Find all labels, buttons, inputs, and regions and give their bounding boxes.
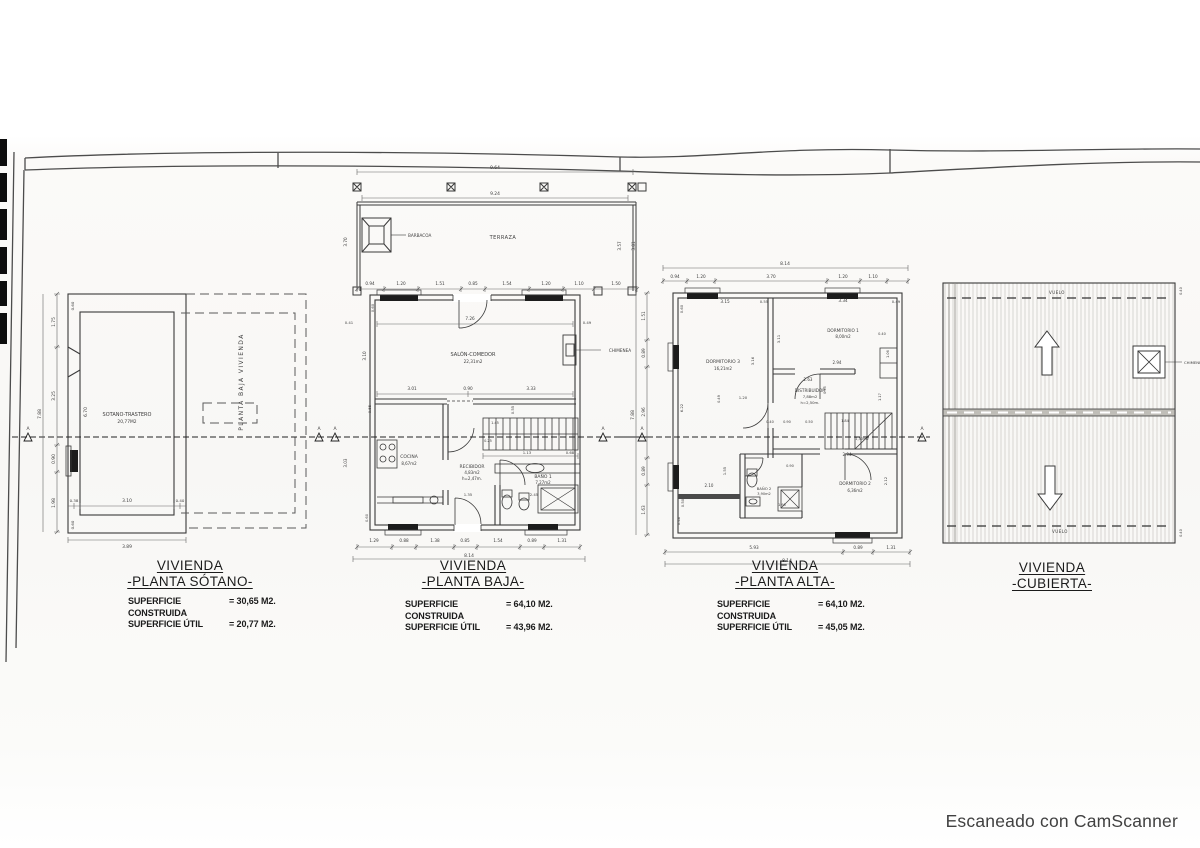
dim-label: 0.40 <box>766 420 774 424</box>
dim-label: 0.40 <box>1179 529 1183 537</box>
dim-label: 1.98 <box>51 498 57 508</box>
baja-stairs <box>483 418 580 473</box>
dim-label: 0.40 <box>878 332 886 336</box>
room-height-distribuidor: h=2,50m. <box>801 400 820 405</box>
dim-label: 0.46 <box>676 516 681 525</box>
dim-label: 1.84 <box>841 419 850 423</box>
room-area-bano2: 3,90m2 <box>757 492 770 496</box>
binding-strip <box>0 139 7 344</box>
plan-sotano: A A A SOTANO-TRASTERO 20,77M2 PLANTA BAJ… <box>10 282 350 567</box>
area-constructed-value: = 64,10 M2. <box>818 599 865 622</box>
dim-label: 1.35 <box>464 492 473 497</box>
bano1-fixtures <box>502 485 578 513</box>
dim-label: 0.60 <box>365 513 369 522</box>
dim-label: 6.70 <box>83 407 89 417</box>
alta-section-line: A A <box>620 426 930 441</box>
alta-stairs <box>825 413 892 449</box>
dim-label: 1.55 <box>722 466 727 475</box>
title-alta: VIVIENDA -PLANTA ALTA- <box>690 558 880 590</box>
dim-label: 1.51 <box>641 311 646 321</box>
dim-label: 1.95 <box>778 503 786 507</box>
room-label-cocina: COCINA <box>400 454 419 460</box>
room-area-salon: 22,31m2 <box>464 359 483 364</box>
dim-label: 0.49 <box>892 299 901 304</box>
title-vivienda: VIVIENDA <box>690 558 880 574</box>
dim-label: 3.10 <box>122 498 132 504</box>
plan-cubierta: VUELO VUELO CHIMENEA 0.40 0.40 <box>935 273 1200 573</box>
title-cubierta-sub: -CUBIERTA- <box>957 576 1147 592</box>
room-label-salon: SALÓN-COMEDOR <box>451 351 496 358</box>
room-label-dorm1: DORMITORIO 1 <box>827 328 859 333</box>
room-area-dorm3: 16,21m2 <box>714 366 732 371</box>
dim-label: 0.60 <box>370 303 375 312</box>
room-label-dorm2: DORMITORIO 2 <box>839 481 871 486</box>
baja-walls <box>370 295 580 530</box>
dim-label: 3.03 <box>343 458 348 467</box>
dim-label: 3.89 <box>122 544 132 550</box>
area-util-label: SUPERFICIE ÚTIL <box>128 619 229 631</box>
overlay-label: PLANTA BAJA VIVIENDA <box>238 333 245 430</box>
dim-label: 3.01 <box>407 386 417 391</box>
area-constructed-value: = 64,10 M2. <box>506 599 553 622</box>
dim-label: 0.85 <box>468 281 478 286</box>
dim-label: 2.63 <box>804 377 813 382</box>
room-label-distribuidor: DISTRIBUIDOR <box>795 388 826 393</box>
dim-label: 0.60 <box>70 520 75 529</box>
dim-label: 0.60 <box>70 301 75 310</box>
area-util-value: = 45,05 M2. <box>818 622 865 634</box>
room-label-dorm3: DORMITORIO 3 <box>706 359 740 365</box>
label-vuelo-bottom: VUELO <box>1052 529 1068 534</box>
dim-label: 0.25 <box>484 439 492 443</box>
dim-label: 0.55 <box>510 405 515 414</box>
dim-label: 3.70 <box>766 274 776 279</box>
dim-label: 9.64 <box>490 165 500 171</box>
dim-label: 1.10 <box>868 274 878 279</box>
dim-label: 0.90 <box>463 386 473 391</box>
barbacoa-grill <box>362 218 406 252</box>
dim-label: 0.60 <box>679 304 684 313</box>
dim-label: 0.55 <box>760 299 769 304</box>
dim-label: 3.81 <box>631 241 636 251</box>
plan-alta: A A 8.14 0.94 1.20 3.70 1.20 1.10 1.51 0… <box>618 253 930 575</box>
chimenea-fireplace <box>563 335 601 365</box>
section-label: A <box>317 426 321 432</box>
dim-label: 0.41 <box>345 320 354 325</box>
area-constructed-label: SUPERFICIE CONSTRUIDA <box>717 599 818 622</box>
bano2-fixtures <box>746 469 802 511</box>
room-label-terraza: TERRAZA <box>489 235 517 241</box>
room-area-bano1: 7,27m2 <box>535 480 551 485</box>
area-constructed-label: SUPERFICIE CONSTRUIDA <box>128 596 229 619</box>
room-area-dorm1: 8,00m2 <box>835 334 851 339</box>
dim-label: 0.90 <box>51 454 57 464</box>
area-util-value: = 43,96 M2. <box>506 622 553 634</box>
dim-label: 8.14 <box>780 261 790 267</box>
dim-label: 1.38 <box>430 538 440 543</box>
dim-label: 0.89 <box>641 466 646 476</box>
dim-label: 0.88 <box>399 538 409 543</box>
dim-label: 1.31 <box>557 538 567 543</box>
dim-label: 3.25 <box>51 391 57 401</box>
dim-label: 3.11 <box>776 334 781 343</box>
dim-label: 0.50 <box>805 420 813 424</box>
dim-label: 0.40 <box>1179 287 1183 295</box>
dim-label: 0.40 <box>176 498 185 503</box>
room-area-dorm2: 6,36m2 <box>847 488 863 493</box>
stairs-area-label: 1,50m2 <box>855 437 868 441</box>
dim-label: 2.94 <box>843 452 852 457</box>
cocina-fixtures <box>377 440 443 504</box>
area-util-label: SUPERFICIE ÚTIL <box>717 622 818 634</box>
sotano-section-line: A A A <box>12 426 340 441</box>
dim-label: 3.70 <box>343 237 348 247</box>
dim-label: 1.17 <box>878 393 882 401</box>
roof-outline <box>943 283 1175 543</box>
dim-label: 0.68 <box>566 450 575 455</box>
dim-label: 0.55 <box>367 404 372 413</box>
title-cubierta: VIVIENDA -CUBIERTA- <box>957 560 1147 592</box>
title-baja: VIVIENDA -PLANTA BAJA- <box>378 558 568 590</box>
dim-label: 2.96 <box>641 407 646 417</box>
section-label: A <box>26 426 30 432</box>
dim-label: 0.85 <box>460 538 470 543</box>
room-height-recibidor: h=2,47m. <box>462 476 482 481</box>
dim-label: 0.90 <box>786 464 794 468</box>
area-util-label: SUPERFICIE ÚTIL <box>405 622 506 634</box>
section-label: A <box>601 426 605 432</box>
dim-label: 7.88 <box>630 410 636 420</box>
room-area-recibidor: 4,83m2 <box>464 470 480 475</box>
label-chimenea-roof: CHIMENEA <box>1184 360 1200 365</box>
room-label-sotano: SOTANO-TRASTERO <box>103 412 152 418</box>
dim-label: 0.50 <box>680 498 685 507</box>
areas-sotano: SUPERFICIE CONSTRUIDA= 30,65 M2. SUPERFI… <box>128 596 308 631</box>
dim-label: 1.20 <box>838 274 848 279</box>
alta-windows <box>668 288 872 543</box>
dim-label: 1.20 <box>696 274 706 279</box>
area-constructed-value: = 30,65 M2. <box>229 596 276 619</box>
title-planta-alta: -PLANTA ALTA- <box>690 574 880 590</box>
title-planta-baja: -PLANTA BAJA- <box>378 574 568 590</box>
camscanner-credit: Escaneado con CamScanner <box>946 811 1178 832</box>
dim-label: 0.38 <box>70 498 79 503</box>
dim-label: 7.88 <box>37 409 43 419</box>
dim-label: 1.31 <box>886 545 896 550</box>
title-sotano: VIVIENDA -PLANTA SÓTANO- <box>95 558 285 590</box>
areas-alta: SUPERFICIE CONSTRUIDA= 64,10 M2. SUPERFI… <box>717 599 897 634</box>
dim-label: 0.94 <box>365 281 375 286</box>
dim-label: 3.15 <box>720 299 730 304</box>
dim-label: 1.10 <box>574 281 584 286</box>
area-util-value: = 20,77 M2. <box>229 619 276 631</box>
dim-label: 1.29 <box>369 538 379 543</box>
title-planta-sotano: -PLANTA SÓTANO- <box>95 574 285 590</box>
dim-label: 0.94 <box>670 274 680 279</box>
dim-label: 2.12 <box>883 476 888 485</box>
dim-label: 1.06 <box>886 350 890 358</box>
room-label-bano2: BAÑO 2 <box>757 486 772 491</box>
dim-label: 0.90 <box>783 420 791 424</box>
dim-label: 2.94 <box>833 360 842 365</box>
baja-texts: 9.64 9.24 BARBACOA TERRAZA 3.70 3.57 3.8… <box>343 165 636 559</box>
areas-baja: SUPERFICIE CONSTRUIDA= 64,10 M2. SUPERFI… <box>405 599 585 634</box>
area-constructed-label: SUPERFICIE CONSTRUIDA <box>405 599 506 622</box>
dim-label: 5.93 <box>749 545 759 550</box>
room-area-sotano: 20,77M2 <box>117 419 136 425</box>
dim-label: 1.54 <box>502 281 512 286</box>
dim-label: 9.24 <box>490 191 500 197</box>
dim-label: 7.26 <box>465 316 475 321</box>
label-vuelo-top: VUELO <box>1049 290 1065 295</box>
dim-label: 1.63 <box>641 505 646 515</box>
dim-label: 0.89 <box>853 545 863 550</box>
section-label: A <box>920 426 924 432</box>
dim-label: 1.51 <box>435 281 445 286</box>
dim-label: 3.10 <box>362 351 367 361</box>
dim-label: 1.45 <box>491 421 499 425</box>
dim-label: 1.20 <box>396 281 406 286</box>
dim-label: 6.22 <box>679 403 684 412</box>
title-vivienda: VIVIENDA <box>378 558 568 574</box>
dim-label: 0.49 <box>583 320 592 325</box>
baja-windows <box>377 290 567 535</box>
dim-label: 3.34 <box>838 298 848 303</box>
dim-label: 0.49 <box>717 395 721 403</box>
dim-label: 1.20 <box>739 395 748 400</box>
section-label: A <box>640 426 644 432</box>
dim-label: 3.57 <box>617 241 622 251</box>
room-area-distribuidor: 7,88m2 <box>803 394 818 399</box>
room-label-barbacoa: BARBACOA <box>408 233 431 238</box>
dim-label: 1.75 <box>51 317 57 327</box>
dim-label: 2.10 <box>705 483 714 488</box>
dim-label: 1.13 <box>523 450 532 455</box>
room-label-bano1: BAÑO 1 <box>534 473 552 480</box>
dim-label: 2.45 <box>530 492 539 497</box>
dim-label: 0.89 <box>641 348 646 358</box>
title-vivienda: VIVIENDA <box>95 558 285 574</box>
room-area-cocina: 8,67m2 <box>401 461 417 466</box>
dim-label: 0.89 <box>527 538 537 543</box>
dim-label: 3.16 <box>750 356 755 365</box>
dim-label: 1.54 <box>493 538 503 543</box>
dim-label: 3.33 <box>526 386 536 391</box>
dim-label: 1.20 <box>541 281 551 286</box>
title-vivienda: VIVIENDA <box>957 560 1147 576</box>
dim-label: 0.95 <box>823 386 827 394</box>
